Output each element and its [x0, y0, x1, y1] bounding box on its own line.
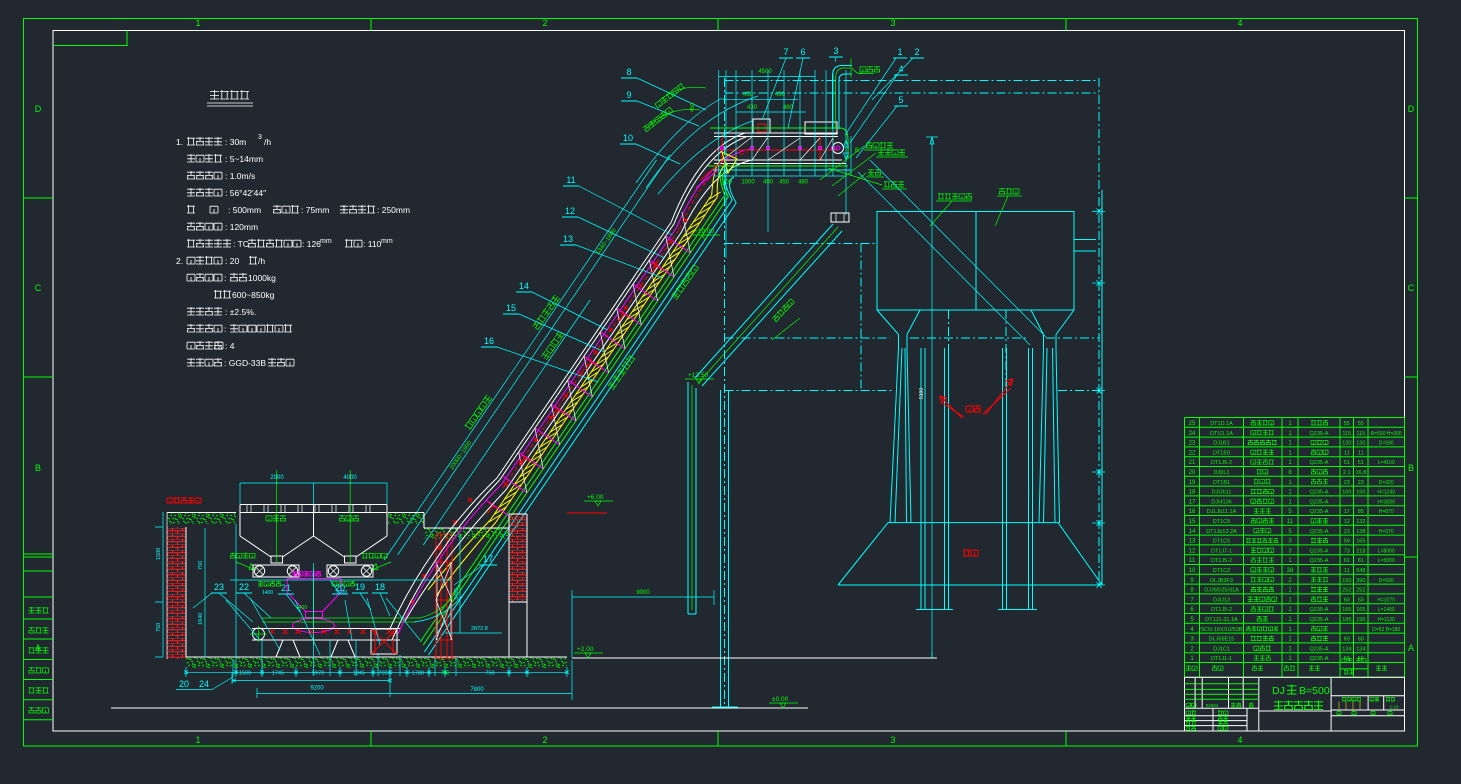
svg-text:134: 134 — [1356, 646, 1365, 652]
svg-text:5: 5 — [898, 95, 903, 105]
svg-text:1000: 1000 — [741, 180, 755, 186]
svg-text:760: 760 — [440, 670, 449, 676]
svg-text:185: 185 — [1342, 617, 1351, 623]
svg-text:1: 1 — [1288, 588, 1292, 594]
svg-text:: 120mm: : 120mm — [225, 222, 258, 232]
svg-text:/h: /h — [264, 137, 271, 147]
svg-text:16: 16 — [484, 336, 494, 346]
svg-text:9: 9 — [626, 90, 631, 100]
svg-text:14: 14 — [1189, 529, 1196, 535]
svg-text:D: D — [35, 104, 42, 114]
svg-text:DT1J1-1: DT1J1-1 — [1211, 656, 1232, 662]
svg-text:19: 19 — [355, 582, 365, 592]
svg-text:4: 4 — [1190, 627, 1194, 633]
svg-text:2: 2 — [542, 18, 547, 28]
svg-text:11: 11 — [1287, 519, 1294, 525]
svg-text:DJ1B1: DJ1B1 — [1213, 441, 1230, 447]
svg-text:L=5000: L=5000 — [1378, 558, 1395, 564]
svg-text:1: 1 — [1288, 646, 1292, 652]
svg-text:3: 3 — [833, 46, 838, 56]
svg-text:24: 24 — [1189, 431, 1196, 437]
svg-text:11: 11 — [1344, 568, 1350, 574]
svg-text:73: 73 — [1344, 548, 1350, 554]
svg-text:Q235-A: Q235-A — [1310, 558, 1329, 564]
svg-text:1: 1 — [1288, 480, 1292, 486]
svg-text:22: 22 — [1189, 450, 1196, 456]
svg-text:12: 12 — [565, 206, 575, 216]
svg-text:134: 134 — [1342, 646, 1351, 652]
svg-text:24: 24 — [199, 679, 209, 689]
svg-text:1:10: 1:10 — [1390, 705, 1399, 710]
svg-text:115: 115 — [1356, 431, 1365, 437]
svg-text:60: 60 — [1358, 637, 1364, 643]
svg-text:11: 11 — [566, 175, 575, 185]
svg-text:: 250mm: : 250mm — [377, 205, 410, 215]
svg-text:6: 6 — [800, 47, 805, 57]
svg-text:300: 300 — [722, 180, 733, 186]
svg-text:11: 11 — [1189, 558, 1196, 564]
svg-text:1: 1 — [1288, 490, 1292, 496]
svg-text:15: 15 — [506, 303, 516, 313]
svg-text:DT1J5-2: DT1J5-2 — [1211, 460, 1232, 466]
svg-text:1: 1 — [1288, 460, 1292, 466]
svg-text:1.: 1. — [176, 137, 183, 147]
svg-text:9200: 9200 — [310, 686, 324, 692]
svg-text:DJIJh11: DJIJh11 — [1212, 490, 1232, 496]
svg-text:1: 1 — [1288, 431, 1292, 437]
svg-text:11: 11 — [1344, 450, 1350, 456]
svg-text:L=1400: L=1400 — [1378, 607, 1395, 613]
svg-text::: : — [224, 324, 226, 334]
svg-text:5: 5 — [1288, 509, 1292, 515]
svg-text:85: 85 — [1358, 509, 1364, 515]
svg-text:DT1C5: DT1C5 — [1213, 519, 1230, 525]
svg-text:H=3000: H=3000 — [1377, 499, 1395, 505]
svg-text:1: 1 — [195, 735, 200, 745]
svg-text:Q235-A: Q235-A — [1310, 499, 1329, 505]
svg-text:Q235-A: Q235-A — [1310, 617, 1329, 623]
svg-text:2000: 2000 — [270, 475, 284, 481]
svg-text:750: 750 — [156, 623, 162, 632]
svg-text:: 56°42′44″: : 56°42′44″ — [225, 188, 266, 198]
svg-text:5970: 5970 — [312, 670, 324, 676]
svg-text:9: 9 — [1190, 578, 1194, 584]
svg-text:3: 3 — [890, 18, 895, 28]
svg-text:252: 252 — [1342, 588, 1351, 594]
svg-text:22: 22 — [239, 582, 249, 592]
svg-text:23: 23 — [214, 582, 224, 592]
svg-text:5: 5 — [1288, 529, 1292, 535]
svg-text:D=500: D=500 — [1379, 578, 1394, 584]
svg-text:2.: 2. — [176, 256, 183, 266]
svg-text:: 126: : 126 — [302, 239, 321, 249]
svg-text:3: 3 — [1190, 637, 1194, 643]
svg-text:1500: 1500 — [239, 670, 251, 676]
svg-text:DLJB3F3: DLJB3F3 — [1210, 578, 1233, 584]
svg-text:17: 17 — [483, 554, 493, 564]
svg-text:2.1: 2.1 — [1343, 470, 1351, 476]
svg-text:DJI4136: DJI4136 — [1211, 499, 1232, 505]
svg-text::: : — [224, 273, 226, 283]
svg-text:23: 23 — [1344, 480, 1350, 486]
svg-text:8: 8 — [1288, 470, 1292, 476]
svg-text:7: 7 — [1190, 597, 1194, 603]
svg-text:59: 59 — [1358, 656, 1364, 662]
svg-text:17: 17 — [1344, 509, 1350, 515]
svg-text:5: 5 — [1190, 617, 1194, 623]
svg-text:1500: 1500 — [156, 548, 162, 560]
svg-text:1: 1 — [195, 18, 200, 28]
svg-text:132: 132 — [1356, 519, 1365, 525]
svg-text:: 75mm: : 75mm — [301, 205, 329, 215]
svg-text:2: 2 — [914, 47, 919, 57]
svg-text:160: 160 — [1342, 490, 1351, 496]
svg-text:DT1C5: DT1C5 — [1213, 539, 1230, 545]
svg-text:DJ: DJ — [1272, 685, 1285, 697]
svg-text:mm: mm — [320, 238, 332, 245]
svg-text:: 1.0m/s: : 1.0m/s — [225, 171, 255, 181]
svg-text:1: 1 — [1288, 597, 1292, 603]
svg-text:DT1J5-2: DT1J5-2 — [1211, 558, 1232, 564]
svg-text:: 20: : 20 — [225, 256, 239, 266]
svg-text:61: 61 — [1344, 558, 1350, 564]
svg-text:218: 218 — [1356, 548, 1365, 554]
svg-text:1780: 1780 — [412, 670, 424, 676]
svg-text:25: 25 — [1189, 421, 1196, 427]
svg-text:: 500mm: : 500mm — [228, 205, 261, 215]
svg-text:DT1J1-31.1A: DT1J1-31.1A — [1205, 617, 1238, 623]
svg-text:Q235-A: Q235-A — [1310, 656, 1329, 662]
svg-text:16: 16 — [1189, 509, 1196, 515]
svg-text:DLJ65E15: DLJ65E15 — [1209, 637, 1235, 643]
svg-text:51: 51 — [1358, 460, 1364, 466]
svg-text:: 30m: : 30m — [225, 137, 246, 147]
svg-text:Q235-A: Q235-A — [1310, 646, 1329, 652]
svg-text:Q235-A: Q235-A — [1310, 607, 1329, 613]
svg-text:1640: 1640 — [198, 613, 204, 625]
svg-text:1: 1 — [897, 47, 902, 57]
svg-text:130: 130 — [1356, 441, 1365, 447]
svg-text:400: 400 — [763, 180, 774, 186]
svg-text:20000~1800: 20000~1800 — [449, 440, 474, 471]
svg-text:138: 138 — [1356, 529, 1365, 535]
svg-text:390: 390 — [1356, 578, 1365, 584]
svg-text:Q235-A: Q235-A — [1310, 431, 1329, 437]
svg-text:H=370: H=370 — [1379, 529, 1394, 535]
svg-text:5340~1800: 5340~1800 — [596, 227, 619, 256]
svg-text:DTIJ1.1A: DTIJ1.1A — [1210, 431, 1233, 437]
svg-text:DT1C2: DT1C2 — [1213, 568, 1230, 574]
svg-text:16.8: 16.8 — [1355, 470, 1366, 476]
svg-text:1000kg: 1000kg — [248, 273, 276, 283]
svg-text:Q235-A: Q235-A — [1310, 548, 1329, 554]
svg-text:6: 6 — [1190, 607, 1194, 613]
svg-text:165: 165 — [1342, 607, 1351, 613]
svg-text:1: 1 — [1288, 637, 1292, 643]
svg-text:11: 11 — [1358, 450, 1364, 456]
svg-text:: 5~14mm: : 5~14mm — [225, 154, 263, 164]
svg-text:1: 1 — [1288, 617, 1292, 623]
svg-text:2: 2 — [1288, 578, 1292, 584]
svg-text:10: 10 — [1189, 568, 1196, 574]
svg-text:9000: 9000 — [636, 590, 650, 596]
svg-text:4000: 4000 — [343, 475, 357, 481]
svg-text:12: 12 — [1189, 548, 1196, 554]
svg-text:7: 7 — [783, 47, 788, 57]
svg-text:3425: 3425 — [454, 588, 460, 600]
svg-text:DT1J7-1: DT1J7-1 — [1211, 548, 1232, 554]
svg-text:8: 8 — [1190, 588, 1194, 594]
svg-text:160: 160 — [1356, 490, 1365, 496]
svg-text:700: 700 — [378, 670, 387, 676]
svg-text:51: 51 — [1344, 460, 1350, 466]
svg-text:: TC: : TC — [233, 239, 249, 249]
svg-text:B=500: B=500 — [1299, 685, 1330, 697]
svg-text:B: B — [35, 463, 41, 473]
svg-text:3: 3 — [1288, 539, 1292, 545]
svg-text:DT1D.1A: DT1D.1A — [1210, 421, 1233, 427]
svg-text:: 110: : 110 — [363, 239, 382, 249]
svg-text:2872.8: 2872.8 — [471, 626, 488, 632]
svg-text:2: 2 — [542, 735, 547, 745]
svg-text:1845: 1845 — [353, 670, 365, 676]
svg-text:20: 20 — [179, 679, 189, 689]
svg-text:19: 19 — [1189, 480, 1196, 486]
svg-text:1: 1 — [1288, 558, 1292, 564]
svg-text:B: B — [1408, 463, 1414, 473]
svg-text:DT1J5-2: DT1J5-2 — [1211, 607, 1232, 613]
svg-text:195: 195 — [1356, 617, 1365, 623]
svg-text:59: 59 — [1344, 539, 1350, 545]
svg-text:H=870: H=870 — [1379, 509, 1394, 515]
svg-text:DJIJ13: DJIJ13 — [1213, 597, 1230, 603]
svg-text:1: 1 — [1190, 656, 1194, 662]
svg-text:H=1120: H=1120 — [1378, 617, 1396, 623]
svg-text:750: 750 — [198, 561, 204, 570]
svg-text:D=52 B=180: D=52 B=180 — [1372, 627, 1400, 633]
svg-text:4: 4 — [1237, 735, 1242, 745]
svg-text:7800: 7800 — [470, 687, 484, 693]
svg-text:13: 13 — [1189, 539, 1196, 545]
svg-text:20: 20 — [335, 583, 345, 593]
svg-text:600~850kg: 600~850kg — [232, 290, 275, 300]
svg-text:H=1240: H=1240 — [1377, 490, 1395, 496]
svg-text:21: 21 — [281, 583, 291, 593]
svg-text:15: 15 — [1189, 519, 1196, 525]
svg-text:12: 12 — [1344, 519, 1350, 525]
svg-text:3: 3 — [1288, 548, 1292, 554]
svg-text:+2.00: +2.00 — [577, 646, 594, 653]
svg-text:1: 1 — [1288, 450, 1292, 456]
svg-text:55: 55 — [1358, 421, 1364, 427]
svg-text:1: 1 — [1288, 499, 1292, 505]
svg-text:18: 18 — [375, 582, 385, 592]
svg-text:10: 10 — [623, 133, 633, 143]
svg-text:/h: /h — [258, 256, 265, 266]
svg-text:165: 165 — [1356, 539, 1365, 545]
svg-text:21: 21 — [1189, 460, 1196, 466]
svg-text:13: 13 — [563, 234, 573, 244]
svg-text:1400: 1400 — [262, 590, 273, 596]
svg-text:38: 38 — [1287, 568, 1294, 574]
svg-text:81: 81 — [1358, 558, 1364, 564]
svg-text:Q235-A: Q235-A — [1310, 460, 1329, 466]
svg-text:DJLJb11.1A: DJLJb11.1A — [1207, 509, 1237, 515]
svg-text:mm: mm — [381, 238, 393, 245]
svg-text:4500: 4500 — [758, 69, 772, 75]
svg-text:50: 50 — [1358, 597, 1364, 603]
svg-text:02694: 02694 — [1206, 703, 1219, 708]
svg-text:C: C — [1408, 283, 1415, 293]
svg-text:14: 14 — [519, 281, 529, 291]
svg-text:1: 1 — [1288, 656, 1292, 662]
svg-text:2: 2 — [1190, 646, 1194, 652]
svg-text:DT1B1: DT1B1 — [1213, 480, 1230, 486]
svg-text:DJ1C1: DJ1C1 — [1213, 646, 1230, 652]
svg-text:750: 750 — [485, 670, 494, 676]
svg-text:60: 60 — [1344, 597, 1350, 603]
svg-text:D=320: D=320 — [1379, 480, 1394, 486]
svg-text:: 4: : 4 — [225, 341, 235, 351]
svg-text:A: A — [1408, 643, 1414, 653]
svg-text:DT1Jb13.2A: DT1Jb13.2A — [1206, 529, 1237, 535]
svg-text:20: 20 — [1189, 470, 1196, 476]
svg-text:480: 480 — [798, 180, 809, 186]
svg-text:150: 150 — [1342, 578, 1351, 584]
svg-text:DJ0L1: DJ0L1 — [1214, 470, 1230, 476]
svg-text:: ±2.5%.: : ±2.5%. — [225, 307, 256, 317]
svg-text:DT1E0: DT1E0 — [1213, 450, 1230, 456]
svg-text:: GGD-33B: : GGD-33B — [224, 358, 266, 368]
svg-text:H=1070: H=1070 — [1377, 597, 1395, 603]
svg-text:Q235-A: Q235-A — [1310, 529, 1329, 535]
svg-text:5100: 5100 — [919, 388, 925, 399]
svg-text:D: D — [1408, 104, 1415, 114]
svg-text:23: 23 — [1358, 480, 1364, 486]
svg-text:1745: 1745 — [272, 670, 284, 676]
svg-text:18: 18 — [1189, 490, 1196, 496]
svg-text:+13.50: +13.50 — [688, 372, 708, 379]
svg-text:1: 1 — [1288, 627, 1292, 633]
svg-text:450: 450 — [779, 180, 790, 186]
svg-text:+19.00: +19.00 — [694, 228, 714, 235]
svg-text:1: 1 — [1288, 421, 1292, 427]
svg-text:L=8000: L=8000 — [1378, 548, 1395, 554]
svg-text:D=500: D=500 — [1379, 441, 1394, 447]
svg-text:DJJ65/25/31A: DJJ65/25/31A — [1204, 588, 1239, 594]
svg-text:60: 60 — [1344, 637, 1350, 643]
svg-text:SCN-10X/10/53B: SCN-10X/10/53B — [1200, 627, 1243, 633]
svg-text:23: 23 — [1189, 441, 1196, 447]
svg-text:115: 115 — [1342, 431, 1351, 437]
svg-text:165: 165 — [1356, 607, 1365, 613]
svg-text:±0.00: ±0.00 — [772, 696, 789, 703]
svg-text:Q235-A: Q235-A — [1310, 490, 1329, 496]
svg-text:450: 450 — [690, 103, 696, 112]
svg-text:1: 1 — [1288, 441, 1292, 447]
svg-text:55: 55 — [1344, 421, 1350, 427]
svg-text:Q235-A: Q235-A — [1310, 509, 1329, 515]
svg-text:B=500 H=300: B=500 H=300 — [1371, 431, 1402, 437]
svg-text:+6.00: +6.00 — [587, 494, 604, 501]
svg-text:130: 130 — [1342, 441, 1351, 447]
svg-text:17: 17 — [1189, 499, 1196, 505]
svg-text:252: 252 — [1356, 588, 1365, 594]
svg-text:1: 1 — [1288, 607, 1292, 613]
svg-text:L=4100: L=4100 — [1378, 460, 1395, 466]
svg-text:C: C — [35, 283, 42, 293]
svg-text:23: 23 — [1344, 529, 1350, 535]
svg-text:3: 3 — [890, 735, 895, 745]
svg-text:8: 8 — [626, 67, 631, 77]
svg-text:4: 4 — [1237, 18, 1242, 28]
svg-text:648: 648 — [1356, 568, 1365, 574]
svg-text:3: 3 — [258, 134, 262, 141]
